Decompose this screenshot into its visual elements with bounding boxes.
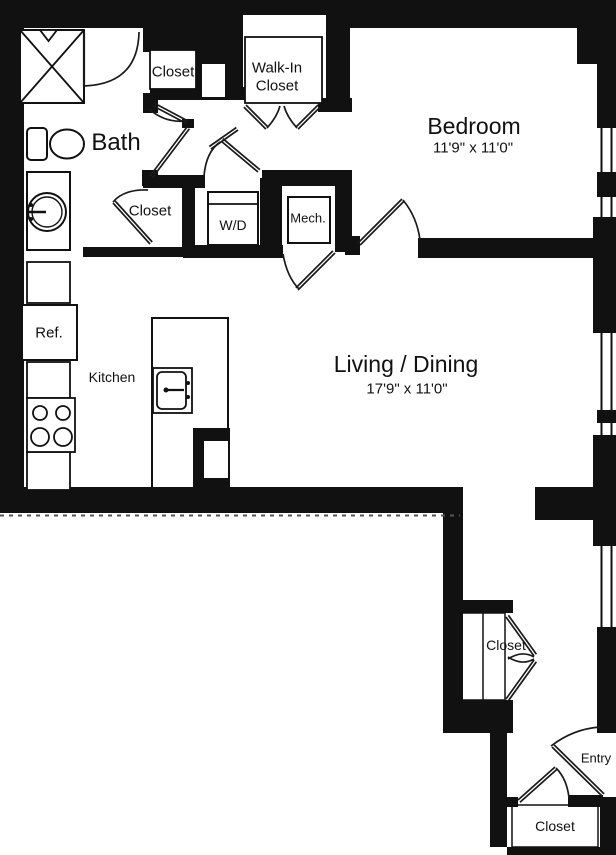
bedroom-dimensions: 11'9" x 11'0" xyxy=(433,139,513,156)
walk-in-closet-label-line1: Walk-In xyxy=(252,59,302,76)
bedroom-door xyxy=(358,199,420,245)
window-hallway xyxy=(597,546,616,627)
closet-upper-door xyxy=(149,103,188,124)
closet-upper-label: Closet xyxy=(152,63,195,80)
wall-niche xyxy=(202,64,225,97)
stove-fixture xyxy=(27,398,75,452)
window-bedroom-2 xyxy=(597,197,616,217)
doors xyxy=(84,32,604,802)
entry-closet-door xyxy=(518,767,569,802)
shower-fixture xyxy=(20,30,84,103)
bath-label: Bath xyxy=(91,129,140,157)
floor-plan: Closet Walk-In Closet Bath Bedroom 11'9"… xyxy=(0,0,616,855)
closet-entry-label: Closet xyxy=(535,818,575,834)
walk-in-closet-label-line2: Closet xyxy=(256,77,299,94)
island-sink-fixture xyxy=(153,368,192,413)
vanity-sink-fixture xyxy=(27,172,70,250)
washer-dryer-label: W/D xyxy=(219,217,246,233)
entry-label: Entry xyxy=(581,752,611,767)
mech-hall-door xyxy=(283,251,335,290)
shower-door xyxy=(84,32,139,87)
bedroom-label: Bedroom xyxy=(427,113,520,139)
window-living-2 xyxy=(597,423,616,435)
closet-bath-label: Closet xyxy=(129,202,172,219)
island-niche-inner xyxy=(204,441,228,478)
toilet-fixture xyxy=(27,128,84,160)
window-living-1 xyxy=(597,333,616,410)
living-dining-dimensions: 17'9" x 11'0" xyxy=(366,380,447,397)
hallway-closet-box xyxy=(462,613,505,700)
walk-in-bifold-door xyxy=(244,105,320,129)
mechanical-label: Mech. xyxy=(290,212,325,227)
windows xyxy=(597,128,616,627)
hallway-bifold-door xyxy=(506,615,536,700)
living-dining-label: Living / Dining xyxy=(334,351,478,377)
closet-hallway-label: Closet xyxy=(486,637,526,653)
refrigerator-label: Ref. xyxy=(35,324,63,341)
window-bedroom-1 xyxy=(597,128,616,172)
kitchen-counter xyxy=(27,262,70,490)
kitchen-label: Kitchen xyxy=(89,369,136,385)
